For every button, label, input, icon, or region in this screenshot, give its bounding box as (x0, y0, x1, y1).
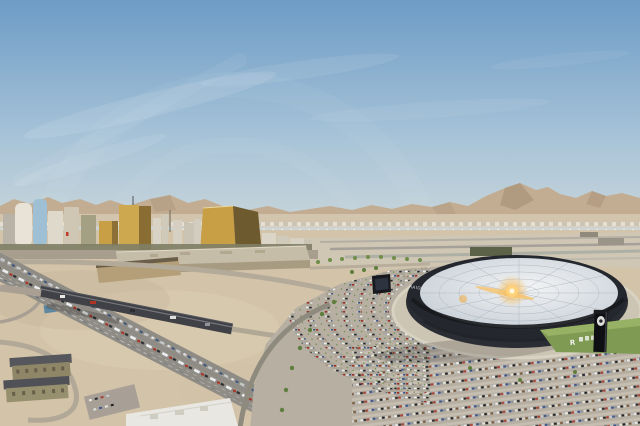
apartment-building (9, 354, 72, 380)
videoboard-tower (372, 274, 391, 294)
hangar (598, 238, 624, 245)
berm-letter-block (579, 337, 583, 342)
gold-tower-small (99, 221, 118, 246)
aerial-rendering-las-vegas-stadium: RAIDERS STADIUM R (0, 0, 640, 426)
apartment-building (3, 376, 70, 403)
beige-tower (64, 207, 79, 246)
scene: RAIDERS STADIUM R (0, 0, 640, 426)
blue-glass-tower (33, 199, 47, 246)
olive-tower (81, 215, 96, 246)
red-sign (66, 232, 69, 236)
berm-letter-block (585, 336, 589, 341)
hangar-green (470, 247, 512, 256)
cylinder-hotel-tower (15, 203, 32, 246)
white-hotel-tower (48, 211, 63, 246)
gray-tower (3, 214, 15, 246)
berm-letter-block (591, 336, 594, 341)
hangar (580, 232, 598, 237)
stadium-marquee-sign (592, 310, 608, 352)
